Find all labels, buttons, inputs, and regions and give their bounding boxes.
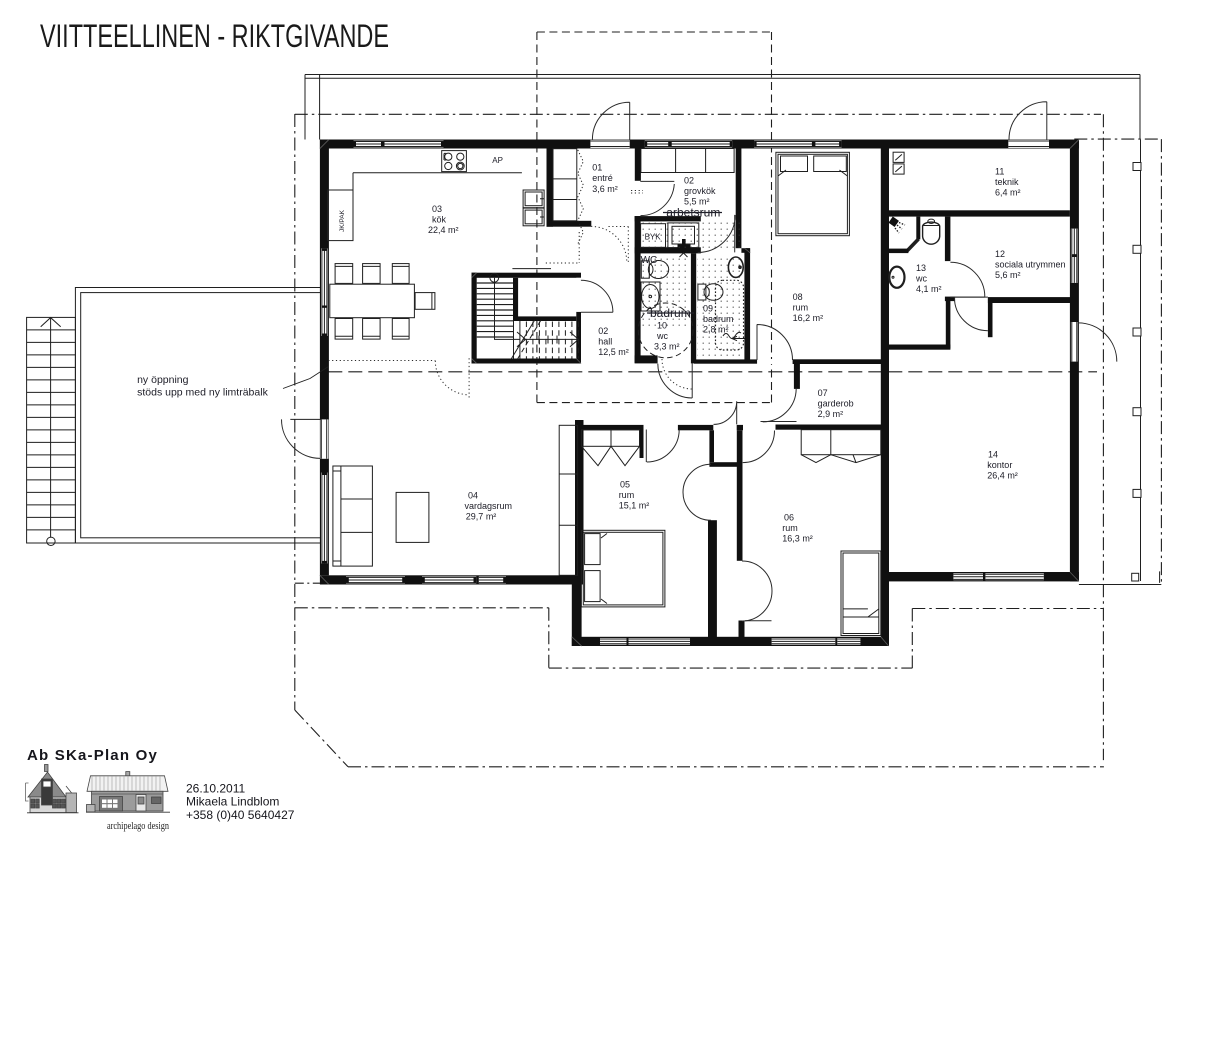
svg-text:wc: wc — [656, 331, 668, 341]
svg-text:sociala utrymmen: sociala utrymmen — [995, 260, 1066, 270]
svg-text:01: 01 — [592, 163, 602, 173]
svg-text:vardagsrum: vardagsrum — [465, 501, 513, 511]
svg-text:6,4 m²: 6,4 m² — [995, 188, 1021, 198]
svg-text:ny öppning: ny öppning — [137, 374, 189, 386]
svg-text:02: 02 — [598, 326, 608, 336]
svg-text:15,1 m²: 15,1 m² — [619, 501, 650, 511]
svg-text:29,7 m²: 29,7 m² — [466, 512, 497, 522]
svg-text:12: 12 — [995, 249, 1005, 259]
svg-text:grovkök: grovkök — [684, 186, 716, 196]
svg-text:wc: wc — [915, 274, 927, 284]
svg-text:13: 13 — [916, 263, 926, 273]
svg-text:22,4 m²: 22,4 m² — [428, 225, 459, 235]
svg-text:12,5 m²: 12,5 m² — [598, 347, 629, 357]
svg-text:26.10.2011: 26.10.2011 — [186, 782, 245, 796]
svg-text:archipelago design: archipelago design — [107, 820, 169, 832]
svg-text:11: 11 — [995, 167, 1004, 177]
svg-text:+358 (0)40 5640427: +358 (0)40 5640427 — [186, 808, 295, 822]
svg-text:5,6 m²: 5,6 m² — [995, 270, 1021, 280]
svg-text:06: 06 — [784, 513, 794, 523]
svg-text:Ab SKa-Plan Oy: Ab SKa-Plan Oy — [27, 747, 158, 764]
svg-text:JK/PAK: JK/PAK — [339, 209, 346, 232]
svg-text:2,8 m²: 2,8 m² — [703, 325, 729, 335]
svg-text:05: 05 — [620, 480, 630, 490]
svg-text:10: 10 — [657, 321, 667, 331]
svg-text:VIITTEELLINEN - RIKTGIVANDE: VIITTEELLINEN - RIKTGIVANDE — [40, 18, 389, 54]
svg-text:3,6 m²: 3,6 m² — [592, 184, 618, 194]
svg-text:WC: WC — [641, 255, 658, 266]
svg-text:14: 14 — [988, 450, 998, 460]
svg-text:rum: rum — [782, 523, 798, 533]
svg-text:26,4 m²: 26,4 m² — [987, 471, 1018, 481]
svg-text:garderob: garderob — [818, 399, 854, 409]
svg-text:kontor: kontor — [987, 460, 1012, 470]
svg-text:02: 02 — [684, 176, 694, 186]
svg-text:04: 04 — [468, 491, 478, 501]
svg-text:Mikaela Lindblom: Mikaela Lindblom — [186, 795, 279, 809]
svg-text:09: 09 — [703, 304, 713, 314]
svg-text:16,3 m²: 16,3 m² — [782, 534, 813, 544]
svg-text:teknik: teknik — [995, 177, 1019, 187]
svg-text:stöds upp med ny limträbalk: stöds upp med ny limträbalk — [137, 387, 268, 399]
svg-text:2,9 m²: 2,9 m² — [818, 409, 844, 419]
svg-text:AP: AP — [492, 156, 503, 165]
svg-text:BYK: BYK — [645, 233, 662, 242]
svg-text:badrum: badrum — [703, 314, 734, 324]
svg-text:3,3 m²: 3,3 m² — [654, 342, 680, 352]
svg-text:entré: entré — [592, 173, 613, 183]
svg-text:16,2 m²: 16,2 m² — [793, 313, 824, 323]
svg-text:hall: hall — [598, 337, 612, 347]
svg-text:rum: rum — [619, 490, 635, 500]
svg-text:03: 03 — [432, 204, 442, 214]
svg-text:08: 08 — [793, 292, 803, 302]
svg-text:4,1 m²: 4,1 m² — [916, 284, 942, 294]
svg-text:rum: rum — [793, 303, 809, 313]
svg-text:kök: kök — [432, 215, 447, 225]
svg-text:07: 07 — [818, 388, 828, 398]
